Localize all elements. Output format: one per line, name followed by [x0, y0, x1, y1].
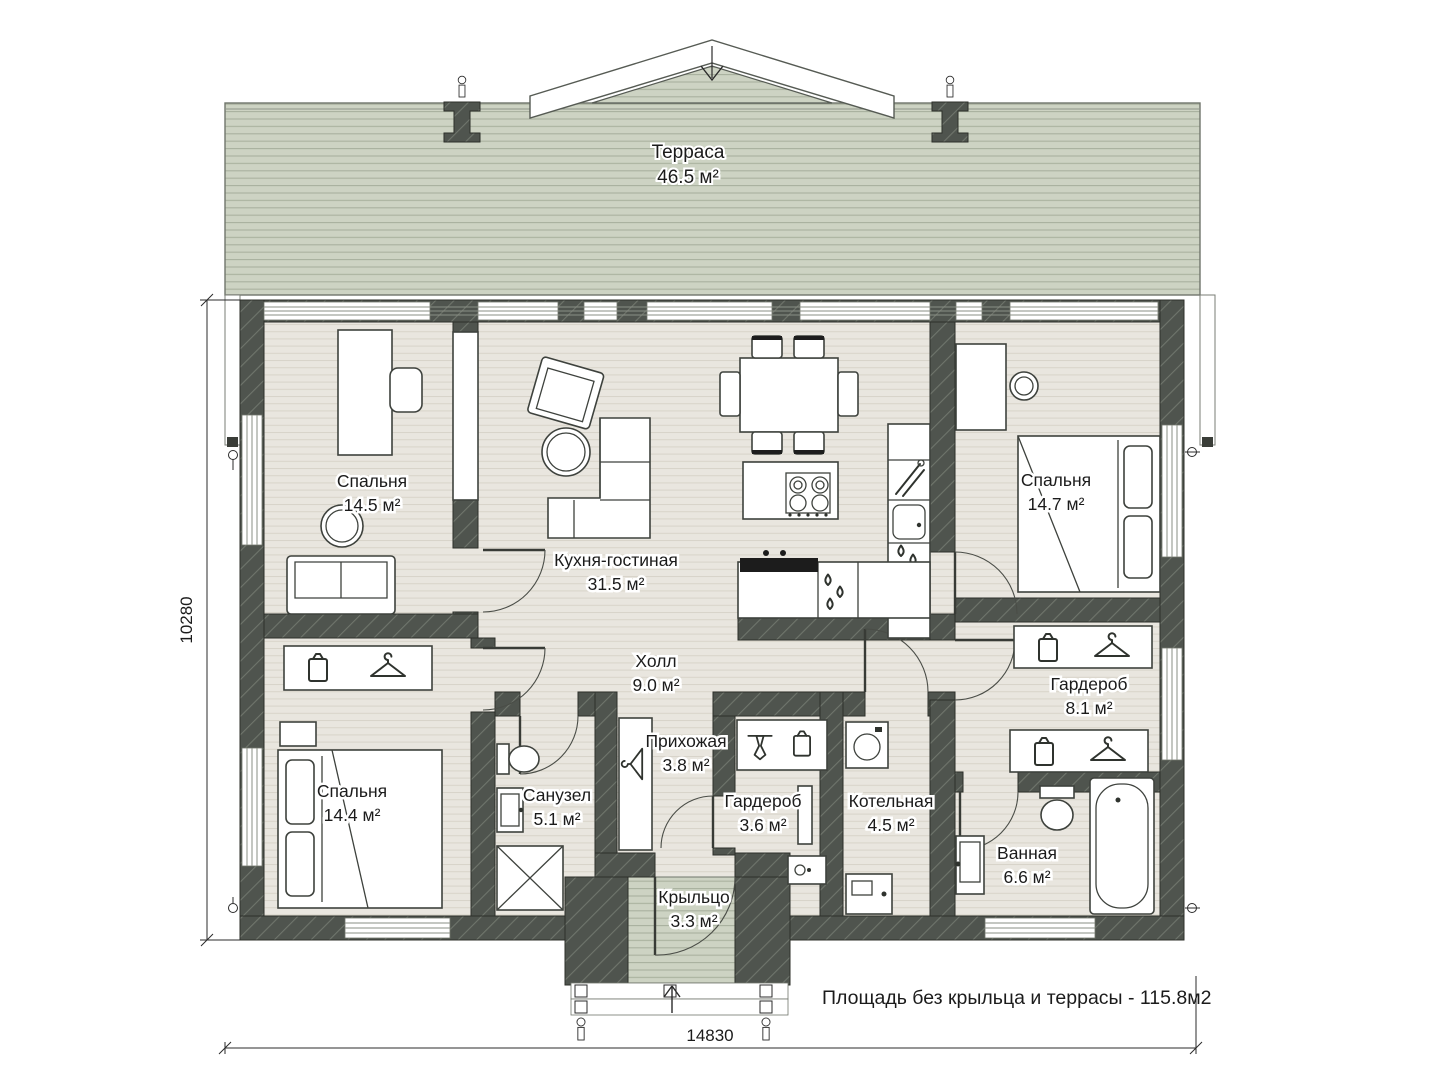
- survey-pin-icon: [577, 1018, 585, 1040]
- floor-plan-drawing: Терраса 46.5 м² Спальня 14.5 м² Кухня-го…: [0, 0, 1440, 1080]
- survey-pin-icon: [762, 1018, 770, 1040]
- wardrobe-big-shelf-bottom: [1010, 730, 1148, 772]
- bedroom-3-closet: [284, 646, 432, 690]
- dresser: [956, 344, 1006, 430]
- terrace-deck: [225, 103, 1200, 295]
- nightstand: [280, 722, 316, 746]
- coffee-table: [542, 428, 590, 476]
- porch-steps: [571, 983, 788, 1040]
- bed-bedroom-2: [1018, 436, 1160, 592]
- window-left-2: [242, 748, 262, 866]
- bathtub: [1090, 778, 1154, 914]
- area-note: Площадь без крыльца и террасы - 115.8м2: [822, 976, 1212, 1048]
- boiler-unit: [846, 874, 892, 914]
- toilet-wc: [497, 744, 539, 774]
- window-bottom-1: [345, 918, 450, 938]
- toilet-bathroom: [1040, 786, 1074, 830]
- desk-chair: [390, 368, 422, 412]
- room-name-bedroom-1: Спальня: [337, 471, 407, 491]
- bed-bedroom-3: [278, 750, 442, 908]
- kitchen-island: [743, 462, 838, 519]
- window-right-2: [1162, 648, 1182, 760]
- wardrobe-small-lower-shelf: [788, 856, 826, 884]
- floor-plan-canvas: Терраса 46.5 м² Спальня 14.5 м² Кухня-го…: [0, 0, 1440, 1080]
- room-area-boiler-room: 4.5 м²: [867, 815, 914, 835]
- room-area-wardrobe-small: 3.6 м²: [739, 815, 786, 835]
- bathroom-sink: [956, 836, 985, 894]
- desk: [338, 330, 392, 455]
- room-name-porch: Крыльцо: [658, 887, 729, 907]
- room-area-wardrobe-big: 8.1 м²: [1065, 698, 1112, 718]
- room-area-bedroom-3: 14.4 м²: [324, 805, 381, 825]
- wc-sink: [497, 788, 523, 832]
- column-marker-icon: [946, 76, 954, 97]
- vertical-dimension: 10280: [177, 596, 196, 643]
- sofa-bedroom-1: [287, 556, 395, 614]
- window-right-1: [1162, 425, 1182, 557]
- window-bottom-2: [985, 918, 1095, 938]
- total-area-note: Площадь без крыльца и террасы - 115.8м2: [822, 987, 1212, 1009]
- room-name-wardrobe-small: Гардероб: [725, 791, 802, 811]
- horizontal-dimension: 14830: [686, 1026, 733, 1045]
- room-name-bathroom: Ванная: [997, 843, 1057, 863]
- room-name-wc: Санузел: [523, 785, 591, 805]
- room-area-porch: 3.3 м²: [670, 911, 717, 931]
- room-name-entry: Прихожая: [645, 731, 726, 751]
- room-name-hall: Холл: [635, 651, 676, 671]
- room-area-kitchen-living: 31.5 м²: [588, 574, 645, 594]
- room-name-bedroom-2: Спальня: [1021, 470, 1091, 490]
- wardrobe-small-shelf: [737, 720, 827, 770]
- room-area-bedroom-2: 14.7 м²: [1028, 494, 1085, 514]
- wardrobe-big-shelf-top: [1014, 626, 1152, 668]
- room-name-kitchen-living: Кухня-гостиная: [554, 550, 678, 570]
- column-marker-icon: [458, 76, 466, 97]
- terrace-name: Терраса: [652, 142, 725, 163]
- dimension-bottom: 14830: [219, 1026, 1202, 1054]
- room-name-wardrobe-big: Гардероб: [1051, 674, 1128, 694]
- room-name-bedroom-3: Спальня: [317, 781, 387, 801]
- shower: [497, 846, 563, 910]
- cooktop-hood: [740, 558, 818, 572]
- room-area-hall: 9.0 м²: [632, 675, 679, 695]
- room-area-bedroom-1: 14.5 м²: [344, 495, 401, 515]
- window-left-1: [242, 415, 262, 545]
- room-area-entry: 3.8 м²: [662, 755, 709, 775]
- terrace-area: 46.5 м²: [657, 167, 719, 188]
- washing-machine: [846, 722, 888, 768]
- room-area-bathroom: 6.6 м²: [1003, 867, 1050, 887]
- built-in-closet: [453, 332, 478, 500]
- room-name-boiler-room: Котельная: [849, 791, 934, 811]
- stool: [1010, 372, 1038, 400]
- room-area-wc: 5.1 м²: [533, 809, 580, 829]
- window-top-band: [264, 302, 1158, 320]
